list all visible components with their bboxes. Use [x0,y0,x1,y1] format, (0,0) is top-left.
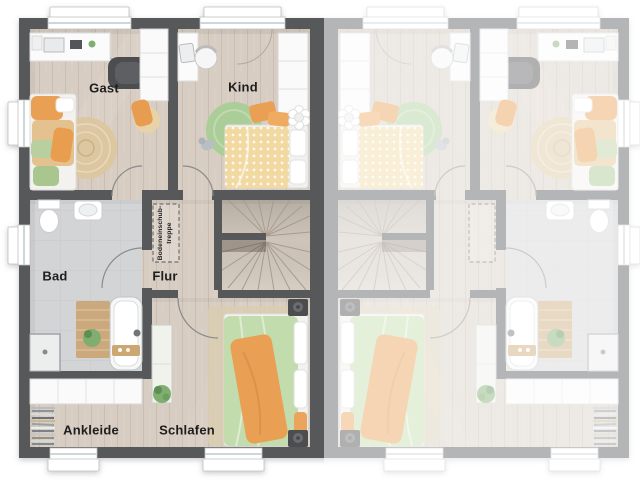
floorplan-drawing [0,0,640,480]
floorplan-image: Gast Kind Bad Flur Ankleide Schlafen Bod… [0,0,640,480]
inactive-unit-overlay [324,0,640,480]
left-unit [8,7,324,471]
